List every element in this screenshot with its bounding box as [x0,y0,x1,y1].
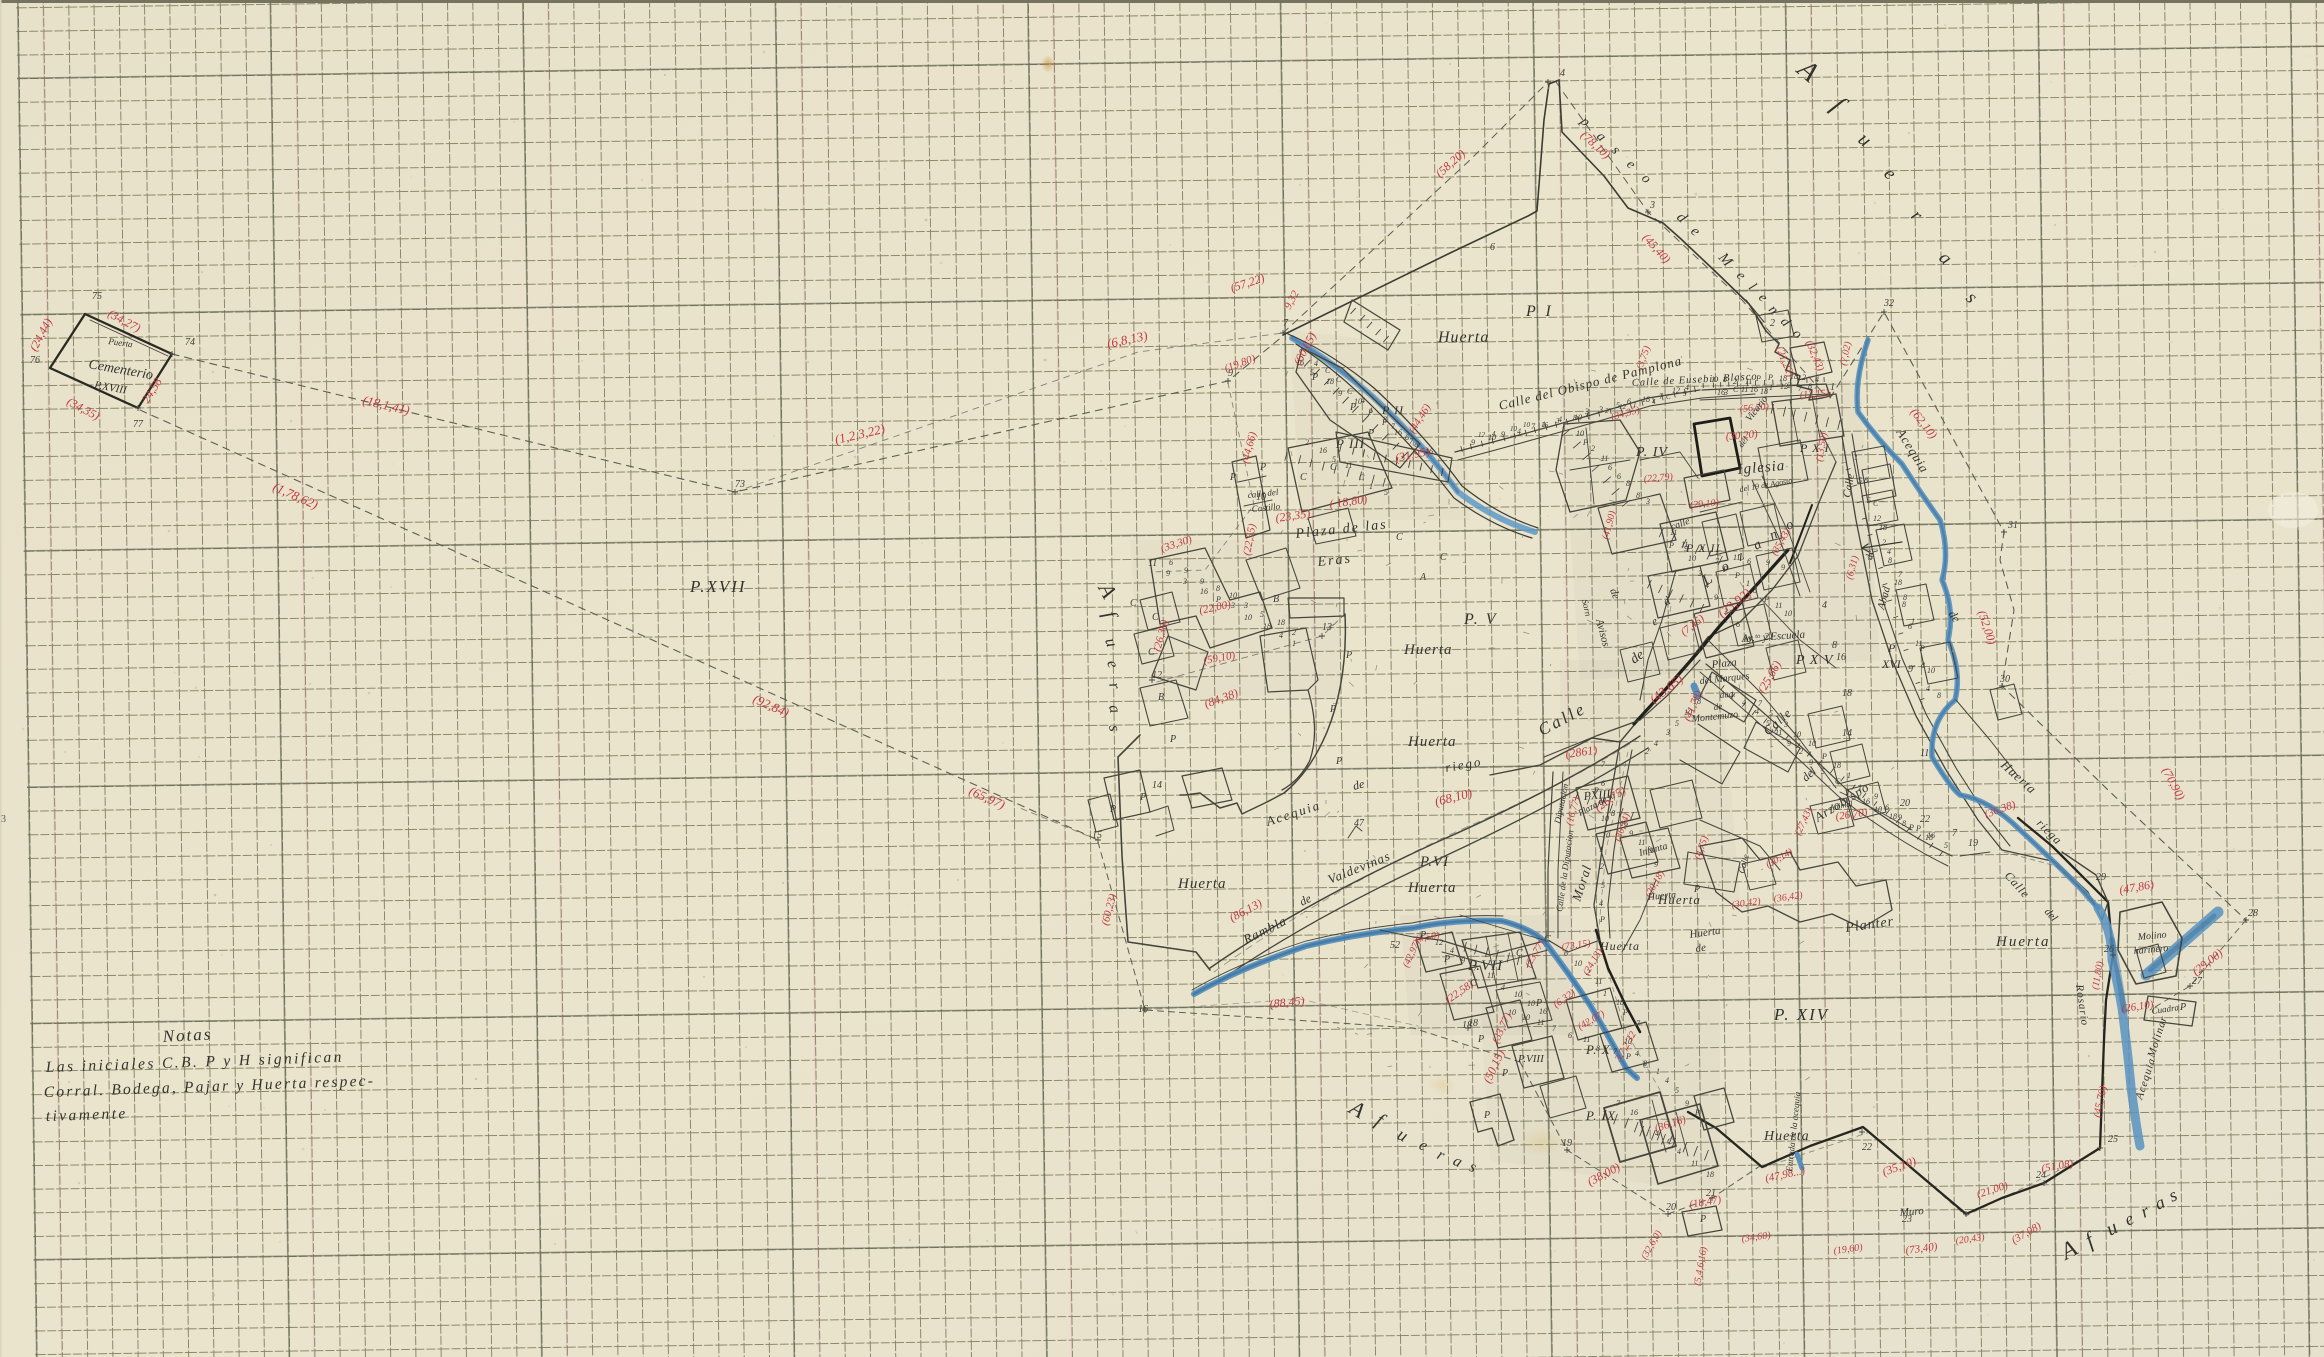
svg-text:16: 16 [1836,652,1846,663]
svg-text:P: P [1229,472,1236,483]
svg-text:C: C [1396,532,1403,543]
svg-text:4: 4 [1517,427,1521,436]
svg-text:47: 47 [1354,818,1365,829]
svg-text:2: 2 [1305,438,1309,447]
svg-text:4: 4 [1635,1049,1639,1058]
svg-text:5: 5 [1601,881,1605,890]
svg-text:C: C [1873,499,1879,508]
svg-text:8: 8 [1643,1059,1647,1068]
svg-text:Huerta: Huerta [1403,642,1453,658]
svg-text:26: 26 [2104,944,2114,955]
svg-text:9: 9 [1461,956,1465,965]
svg-text:5: 5 [1867,496,1871,505]
svg-text:20: 20 [1900,798,1910,809]
svg-text:4: 4 [1599,899,1603,908]
svg-text:P: P [2179,1002,2186,1013]
svg-text:11: 11 [1775,601,1782,610]
svg-text:4: 4 [1279,631,1283,640]
svg-text:3: 3 [1665,728,1670,737]
svg-text:1: 1 [1830,382,1835,393]
svg-text:16: 16 [1630,1108,1638,1117]
svg-text:1: 1 [1847,771,1851,780]
svg-text:P: P [1535,998,1542,1009]
svg-text:P: P [1381,418,1387,427]
svg-text:12: 12 [1152,670,1162,681]
svg-text:29: 29 [2096,872,2106,883]
svg-text:3: 3 [1243,601,1248,610]
svg-text:1: 1 [1599,845,1603,854]
svg-text:19: 19 [1968,838,1978,849]
svg-text:8: 8 [1573,414,1577,422]
svg-text:P: P [1821,752,1827,761]
svg-text:18: 18 [1925,833,1933,842]
svg-text:2: 2 [1591,444,1595,453]
svg-text:P II: P II [1381,403,1404,417]
svg-text:28: 28 [2248,908,2258,919]
svg-text:P X V: P X V [1795,653,1834,668]
svg-text:10: 10 [1576,429,1584,438]
svg-text:C: C [1300,472,1307,483]
svg-text:11: 11 [1537,1018,1544,1027]
svg-text:1: 1 [1911,617,1915,626]
svg-text:P: P [1622,1008,1628,1017]
svg-text:16: 16 [1319,446,1327,455]
svg-text:9: 9 [1166,569,1170,578]
svg-text:P. IX: P. IX [1585,1108,1616,1123]
svg-text:duq.: duq. [1719,688,1736,700]
svg-text:18: 18 [1706,1170,1714,1179]
svg-text:Huerta: Huerta [1177,876,1227,892]
svg-text:10: 10 [1574,959,1582,968]
svg-text:P: P [1443,954,1450,965]
svg-text:31: 31 [2007,520,2018,531]
svg-text:11: 11 [1595,977,1602,986]
svg-text:C: C [1733,385,1739,394]
svg-text:1: 1 [1854,453,1858,462]
svg-text:30: 30 [1999,674,2010,685]
svg-text:4: 4 [1926,684,1930,693]
svg-text:P: P [1501,1068,1508,1079]
svg-text:Huerta: Huerta [1407,734,1457,750]
svg-text:Notas: Notas [161,1024,213,1046]
svg-text:1: 1 [1603,989,1607,998]
svg-text:9: 9 [1338,389,1342,398]
svg-text:10: 10 [1688,554,1696,563]
svg-text:18: 18 [1263,622,1271,631]
svg-text:9: 9 [1200,577,1204,586]
svg-text:11: 11 [1741,385,1748,394]
svg-text:2: 2 [1605,407,1609,415]
svg-text:C: C [1470,978,1477,989]
svg-text:18: 18 [1894,578,1902,587]
svg-text:P: P [1311,372,1318,383]
svg-text:8: 8 [1636,491,1640,500]
svg-text:5: 5 [1260,610,1264,619]
svg-text:9: 9 [1685,1099,1689,1108]
svg-text:10: 10 [1927,666,1935,675]
svg-text:5: 5 [1384,488,1388,497]
svg-text:9: 9 [1471,438,1475,447]
svg-text:Huerta: Huerta [1995,934,2051,950]
svg-text:4: 4 [1755,707,1759,716]
svg-text:3: 3 [1555,417,1560,425]
svg-text:9: 9 [1654,860,1658,869]
svg-text:C: C [1325,366,1331,375]
svg-text:12: 12 [1478,431,1486,439]
svg-text:8: 8 [1216,584,1220,593]
svg-text:14: 14 [1152,780,1162,791]
svg-text:P.VI: P.VI [1419,854,1449,870]
svg-text:P: P [1734,571,1740,580]
svg-text:76: 76 [30,355,40,366]
svg-text:3: 3 [1182,577,1187,586]
svg-text:P III: P III [1335,436,1365,451]
svg-text:2: 2 [1802,373,1806,382]
svg-text:9: 9 [1501,430,1505,439]
svg-text:4: 4 [1560,68,1565,79]
svg-text:12: 12 [1672,386,1680,395]
svg-text:8: 8 [1611,809,1615,818]
svg-text:3: 3 [1723,388,1728,397]
svg-text:P: P [1109,804,1116,815]
svg-text:6: 6 [1568,1031,1572,1040]
svg-text:32: 32 [1883,298,1894,309]
svg-text:P X II: P X II [1685,541,1720,555]
svg-text:4: 4 [1742,698,1746,707]
svg-text:tivamente: tivamente [46,1105,128,1125]
svg-text:10: 10 [1527,999,1535,1008]
svg-text:C: C [1666,393,1671,401]
svg-text:3: 3 [1645,497,1650,506]
svg-text:16: 16 [1138,1004,1148,1015]
svg-text:25: 25 [2108,1134,2118,1145]
svg-text:P. IV: P. IV [1635,445,1668,460]
svg-text:11: 11 [1601,454,1608,463]
svg-text:4: 4 [1586,411,1590,419]
svg-text:A: A [1419,572,1427,583]
svg-text:18: 18 [1326,377,1334,386]
svg-text:P: P [1582,438,1588,447]
svg-text:6: 6 [1747,557,1751,566]
svg-text:9: 9 [1874,792,1878,801]
svg-text:4: 4 [1652,398,1656,406]
svg-text:5: 5 [1675,1086,1679,1095]
svg-text:8: 8 [1832,640,1837,651]
svg-text:P. V: P. V [1463,611,1498,628]
svg-text:5: 5 [1821,767,1825,776]
svg-text:16: 16 [1394,428,1402,437]
svg-text:1: 1 [1746,579,1750,588]
svg-text:77: 77 [133,419,144,430]
svg-text:C: C [1330,462,1337,473]
svg-text:9: 9 [1781,563,1785,572]
svg-text:P: P [1139,792,1146,803]
svg-text:11: 11 [1691,1159,1698,1168]
svg-text:C: C [1336,375,1342,384]
svg-text:P: P [1367,428,1374,439]
svg-text:P: P [1477,1034,1484,1045]
svg-text:6: 6 [1617,472,1621,481]
svg-text:P: P [1169,734,1176,745]
svg-text:9: 9 [1787,739,1791,748]
svg-text:8: 8 [1937,691,1941,700]
svg-text:2: 2 [1645,747,1649,756]
svg-text:10: 10 [1510,425,1518,433]
svg-text:10: 10 [1808,739,1816,748]
svg-text:3: 3 [1598,405,1603,414]
svg-text:22: 22 [1862,1142,1872,1153]
svg-text:P: P [1367,408,1373,417]
svg-text:8: 8 [1921,661,1925,670]
svg-text:1: 1 [1769,383,1773,392]
svg-text:9: 9 [1629,829,1633,838]
svg-text:C: C [1544,934,1551,945]
svg-text:9: 9 [1898,813,1902,822]
svg-text:16: 16 [1200,587,1208,596]
svg-text:P: P [1419,930,1426,941]
svg-text:6: 6 [1169,558,1173,567]
svg-text:C: C [1440,552,1447,563]
svg-text:14: 14 [1842,728,1852,739]
svg-text:6: 6 [1608,463,1612,472]
svg-text:6: 6 [1627,397,1631,406]
svg-text:9: 9 [1184,566,1188,575]
svg-text:18: 18 [1842,688,1852,699]
svg-text:8: 8 [1864,476,1868,485]
svg-text:C: C [1347,387,1353,396]
svg-text:4: 4 [1654,739,1658,748]
svg-text:16: 16 [1541,421,1549,429]
svg-text:4: 4 [1314,359,1318,368]
svg-text:13: 13 [1322,622,1332,633]
svg-text:18: 18 [1616,998,1624,1007]
svg-text:P. XIV: P. XIV [1773,1005,1830,1024]
svg-text:75: 75 [92,291,102,302]
svg-text:2: 2 [1882,538,1886,547]
svg-text:10: 10 [1229,591,1237,600]
svg-text:3: 3 [1,814,6,825]
svg-text:C: C [1130,598,1137,609]
svg-text:10: 10 [1522,1013,1530,1022]
svg-text:Huerta: Huerta [1407,880,1457,896]
svg-text:11: 11 [1345,461,1352,470]
svg-text:10: 10 [1793,730,1801,739]
svg-text:P.VIII: P.VIII [1517,1053,1545,1065]
svg-text:Huerta: Huerta [1437,329,1489,346]
svg-text:4: 4 [1665,1076,1669,1085]
svg-text:5: 5 [1944,841,1948,850]
svg-text:4: 4 [1887,547,1891,556]
svg-text:de: de [1695,942,1707,955]
svg-text:74: 74 [185,337,195,348]
svg-text:1: 1 [1656,1067,1660,1076]
svg-text:B: B [1273,594,1279,605]
svg-text:2: 2 [1787,381,1791,390]
svg-text:2: 2 [1799,747,1803,756]
svg-text:3: 3 [1649,200,1655,211]
svg-text:P I: P I [1525,303,1554,320]
svg-text:18: 18 [1462,1020,1472,1031]
svg-text:6: 6 [1885,803,1889,812]
svg-text:22: 22 [1920,814,1930,825]
svg-text:P: P [1915,824,1921,833]
svg-text:4: 4 [1822,600,1827,611]
svg-text:18: 18 [1833,761,1841,770]
svg-text:P: P [1887,641,1896,655]
svg-text:12: 12 [1873,514,1881,523]
svg-text:P: P [1693,884,1700,895]
svg-text:10: 10 [1244,613,1252,622]
svg-text:4: 4 [1501,983,1505,992]
svg-text:C: C [1835,777,1841,786]
svg-text:P: P [1919,644,1925,653]
svg-text:9: 9 [1908,664,1913,675]
svg-text:4: 4 [1677,1147,1681,1156]
svg-text:2: 2 [1770,318,1775,329]
svg-text:P: P [1699,1214,1706,1225]
svg-text:52: 52 [1390,940,1400,951]
svg-text:P: P [1694,1108,1700,1117]
svg-text:4: 4 [1450,946,1454,955]
svg-text:P: P [1483,1110,1490,1121]
svg-text:11: 11 [1920,748,1929,759]
svg-text:P. X: P. X [1585,1042,1611,1057]
svg-text:P: P [1908,823,1914,832]
svg-text:4: 4 [1492,430,1496,438]
svg-text:P.XVII: P.XVII [689,577,747,596]
svg-text:P: P [1349,402,1356,413]
svg-text:73: 73 [735,479,745,490]
svg-text:P.VII: P.VII [1467,958,1503,974]
svg-text:P: P [1335,756,1342,767]
svg-text:10: 10 [1602,831,1610,840]
svg-text:6: 6 [1736,620,1740,629]
svg-text:9: 9 [1766,558,1770,567]
svg-text:Muro: Muro [1898,1205,1924,1219]
svg-text:18: 18 [1642,395,1650,404]
svg-text:10: 10 [1523,421,1531,429]
svg-text:P: P [1259,462,1266,473]
svg-text:16: 16 [1750,385,1758,394]
svg-text:B: B [1158,692,1164,703]
svg-text:5: 5 [1858,476,1862,485]
svg-text:18: 18 [1277,618,1285,627]
svg-text:8: 8 [1903,593,1907,602]
svg-text:2: 2 [1292,628,1296,637]
svg-text:10: 10 [1784,609,1792,618]
svg-text:P: P [1329,704,1336,715]
svg-text:C: C [1148,647,1155,658]
svg-text:(12,15): (12,15) [1799,388,1830,401]
svg-text:10: 10 [1601,814,1609,823]
svg-text:C: C [1516,948,1523,959]
svg-text:XVI: XVI [1881,657,1902,671]
svg-text:5: 5 [1675,719,1679,728]
svg-text:P X I: P X I [1799,441,1829,455]
svg-text:P: P [1767,373,1773,382]
svg-text:15: 15 [1092,830,1102,841]
svg-text:20: 20 [1666,1202,1676,1213]
svg-text:Huerta: Huerta [1599,939,1640,953]
svg-text:C: C [1152,612,1159,623]
svg-text:9: 9 [1714,593,1718,602]
svg-text:1: 1 [1292,639,1296,648]
svg-text:2: 2 [1600,862,1604,871]
svg-text:P: P [1599,915,1605,924]
svg-text:10: 10 [1514,990,1522,999]
svg-text:8: 8 [1888,556,1892,565]
svg-text:8: 8 [1753,586,1757,595]
svg-text:11: 11 [1148,558,1157,569]
svg-text:6: 6 [1490,242,1495,253]
svg-text:18: 18 [1879,523,1887,532]
svg-text:8: 8 [1626,479,1630,488]
svg-text:9: 9 [1683,390,1687,398]
